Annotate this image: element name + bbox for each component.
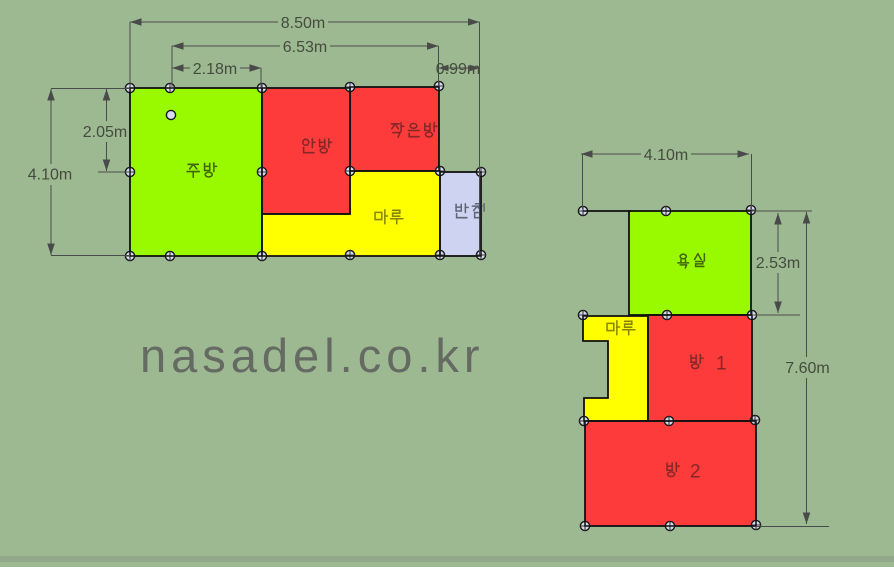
svg-text:2: 2 [690, 462, 701, 483]
svg-text:7.60m: 7.60m [785, 360, 829, 377]
svg-text:nasadel.co.kr: nasadel.co.kr [140, 329, 485, 382]
svg-text:2.18m: 2.18m [193, 61, 237, 78]
svg-text:8.50m: 8.50m [281, 15, 325, 32]
svg-text:2.05m: 2.05m [83, 124, 127, 141]
svg-text:4.10m: 4.10m [28, 166, 72, 183]
svg-text:4.10m: 4.10m [644, 147, 688, 164]
svg-text:1: 1 [716, 354, 727, 375]
svg-text:2.53m: 2.53m [756, 255, 800, 272]
svg-text:6.53m: 6.53m [283, 39, 327, 56]
